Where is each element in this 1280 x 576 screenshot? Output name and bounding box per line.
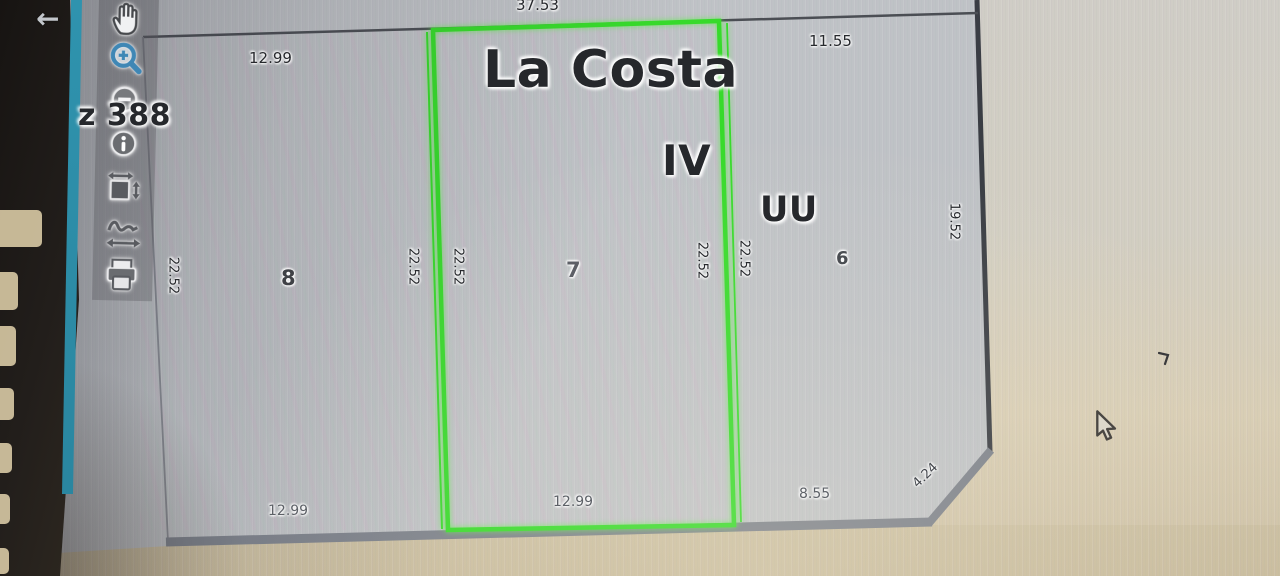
dim-side-4: 22.52 (695, 238, 710, 284)
dim-side-1: 22.52 (166, 253, 181, 299)
block-chamfer-boundary (929, 450, 991, 523)
keyboard-key (0, 548, 9, 574)
parcel-7-number: 7 (566, 258, 581, 282)
keyboard-key (0, 272, 18, 310)
print-tool-button[interactable] (100, 254, 145, 297)
block-number-label: z 388 (78, 98, 171, 133)
block-bottom-boundary (166, 522, 932, 542)
block-right-boundary (977, 0, 990, 452)
zone-label: UU (760, 190, 818, 230)
parcel-8-number: 8 (281, 266, 296, 290)
extent-square-arrows-icon (102, 168, 147, 211)
dim-top-width: 37.53 (516, 0, 559, 14)
pan-hand-icon (106, 0, 151, 39)
zoom-extent-tool-button[interactable] (102, 168, 147, 211)
dim-top-left: 12.99 (249, 49, 292, 67)
section-label: IV (662, 136, 711, 185)
keyboard-key (0, 494, 10, 524)
dim-bottom-parcel7: 12.99 (553, 494, 593, 510)
keyboard-key (0, 326, 16, 366)
measure-tool-button[interactable] (101, 211, 146, 254)
measure-path-icon (101, 211, 146, 254)
print-icon (100, 254, 145, 297)
zoom-in-tool-button[interactable] (105, 39, 150, 82)
parcel-6-number: 6 (836, 248, 849, 269)
dim-bottom-right: 8.55 (799, 486, 830, 502)
map-toolbar (92, 0, 159, 301)
keyboard-key (0, 443, 12, 473)
keyboard-key (0, 388, 14, 420)
dim-right-side: 19.52 (947, 199, 962, 245)
dim-side-2: 22.52 (406, 244, 421, 290)
pan-tool-button[interactable] (106, 0, 151, 39)
dim-side-5: 22.52 (737, 236, 752, 282)
zoom-in-icon (105, 39, 150, 82)
dim-side-3: 22.52 (451, 244, 466, 290)
dim-bottom-left: 12.99 (268, 503, 308, 519)
back-arrow-icon[interactable]: ← (36, 2, 59, 35)
keyboard-key (0, 210, 42, 247)
photographed-screen: La Costa IV UU z 388 8 7 6 37.53 12.99 1… (0, 0, 1280, 576)
map-title: La Costa (483, 40, 738, 100)
dim-top-right: 11.55 (809, 32, 852, 50)
